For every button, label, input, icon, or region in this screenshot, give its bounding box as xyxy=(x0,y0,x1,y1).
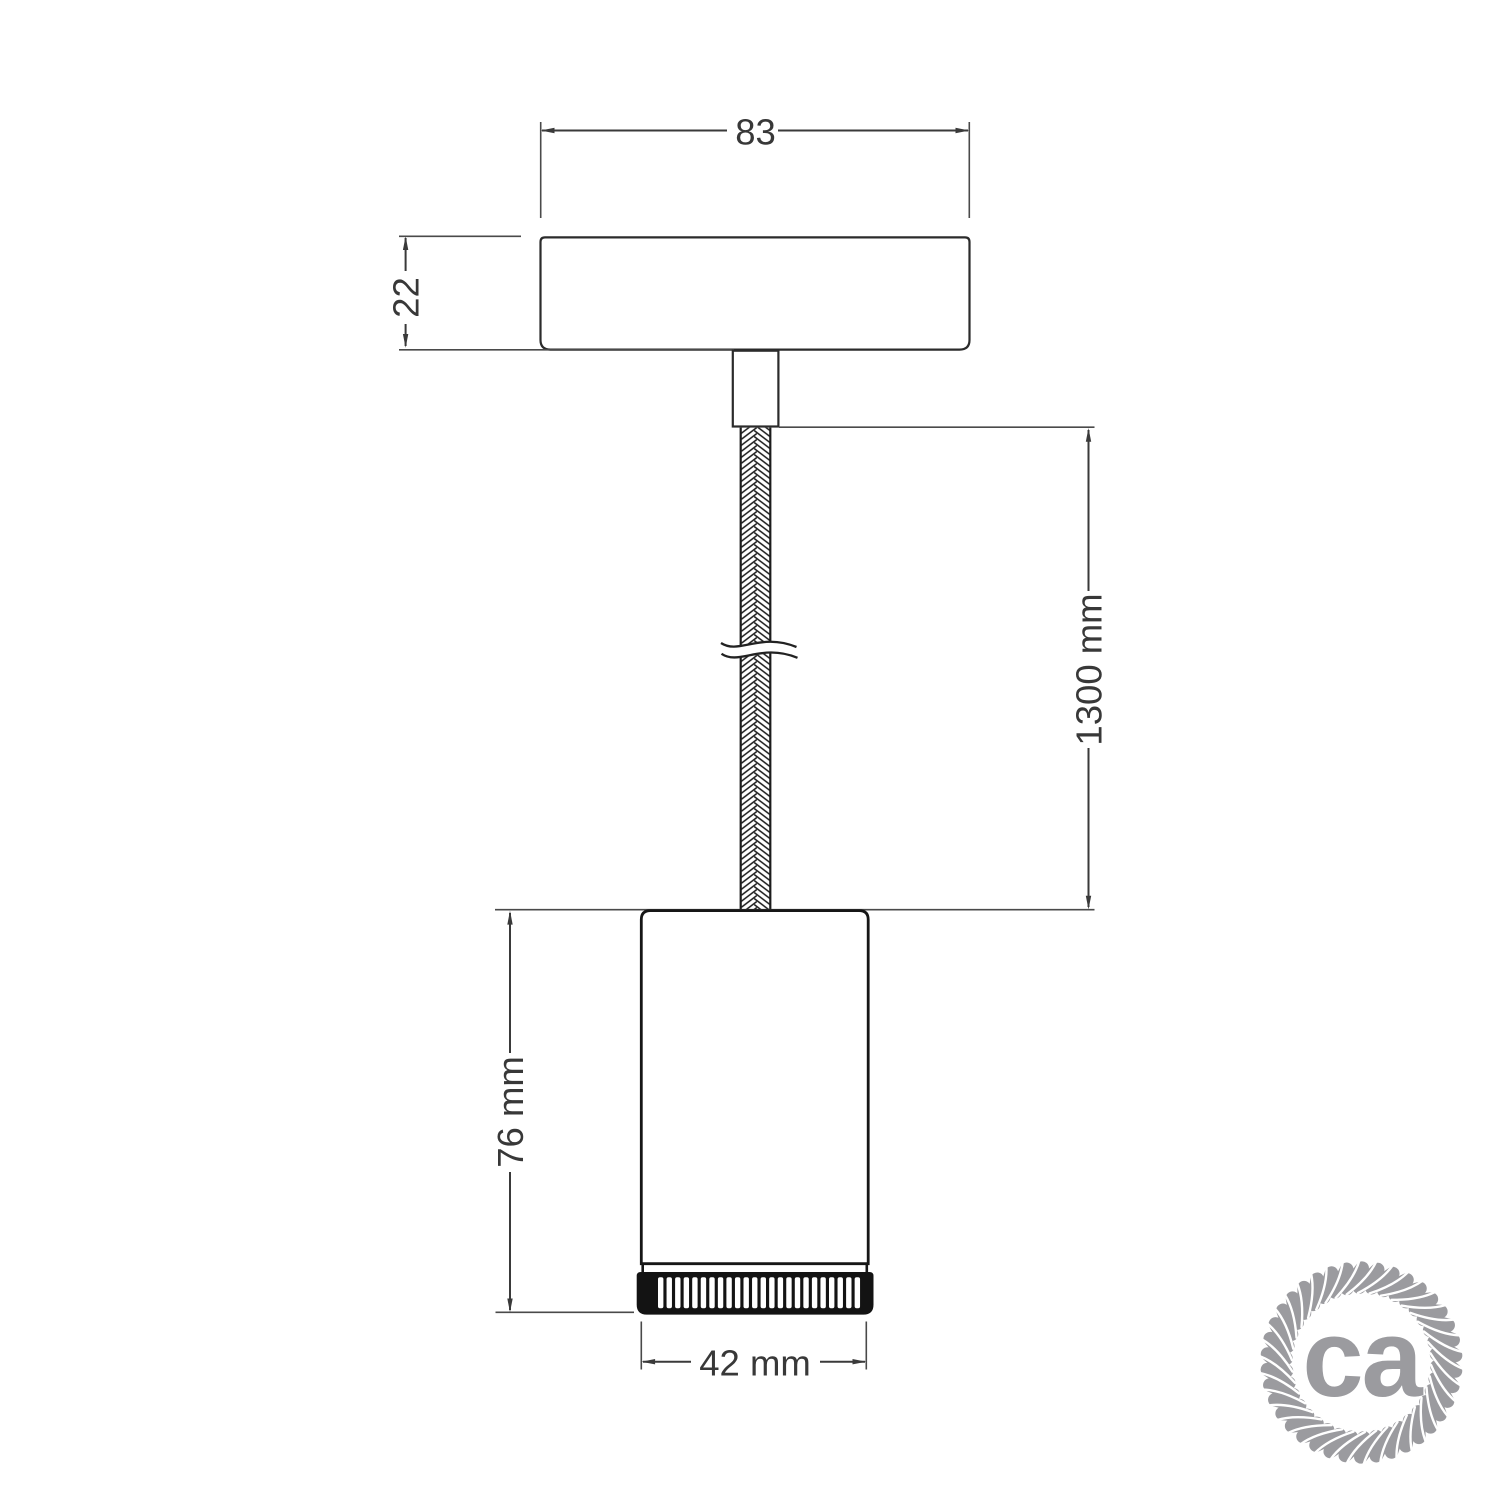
svg-text:42 mm: 42 mm xyxy=(699,1343,811,1384)
svg-text:83: 83 xyxy=(735,112,776,153)
svg-text:76 mm: 76 mm xyxy=(490,1056,531,1168)
svg-text:1300 mm: 1300 mm xyxy=(1069,593,1110,745)
svg-text:22: 22 xyxy=(386,277,427,318)
svg-text:ca: ca xyxy=(1302,1297,1423,1420)
